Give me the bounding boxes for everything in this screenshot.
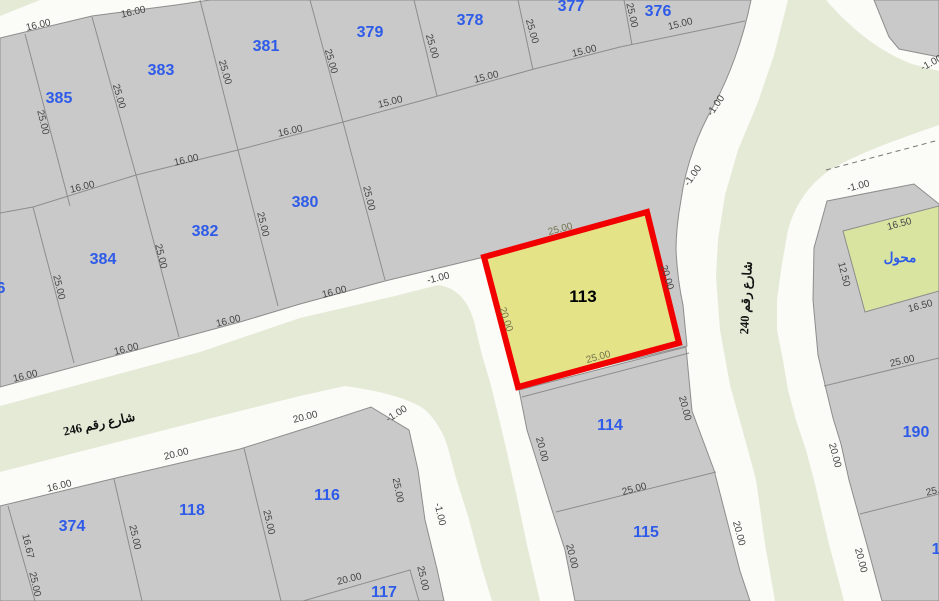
svg-text:386: 386 — [0, 280, 5, 297]
svg-text:116: 116 — [314, 487, 340, 504]
svg-text:118: 118 — [179, 502, 205, 519]
svg-text:115: 115 — [633, 524, 659, 541]
svg-text:191: 191 — [932, 541, 939, 558]
svg-text:383: 383 — [148, 62, 175, 79]
svg-text:114: 114 — [597, 417, 623, 434]
svg-text:377: 377 — [558, 0, 585, 15]
svg-text:190: 190 — [903, 424, 930, 441]
svg-text:113: 113 — [569, 287, 596, 306]
svg-text:374: 374 — [59, 518, 86, 535]
svg-text:380: 380 — [292, 194, 319, 211]
svg-text:381: 381 — [253, 38, 280, 55]
svg-text:385: 385 — [46, 90, 73, 107]
svg-text:379: 379 — [357, 24, 384, 41]
svg-text:محول: محول — [884, 250, 917, 266]
svg-text:376: 376 — [645, 3, 672, 20]
svg-text:117: 117 — [371, 584, 397, 601]
svg-text:384: 384 — [90, 251, 117, 268]
svg-text:382: 382 — [192, 223, 219, 240]
svg-text:378: 378 — [457, 12, 484, 29]
